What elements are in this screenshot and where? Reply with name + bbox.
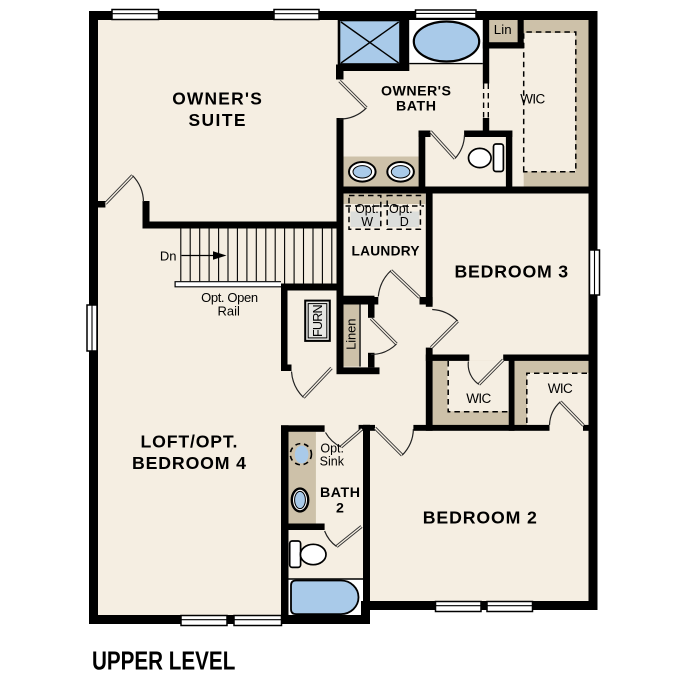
svg-text:W: W: [361, 215, 373, 229]
svg-text:WIC: WIC: [466, 391, 491, 406]
svg-text:Lin: Lin: [494, 22, 512, 37]
svg-text:WIC: WIC: [548, 381, 573, 396]
svg-text:WIC: WIC: [520, 91, 545, 106]
svg-text:BEDROOM 3: BEDROOM 3: [454, 262, 568, 282]
svg-text:UPPER LEVEL: UPPER LEVEL: [92, 645, 235, 675]
svg-text:BEDROOM 4: BEDROOM 4: [132, 453, 246, 473]
svg-text:Opt.: Opt.: [320, 441, 344, 455]
svg-text:LOFT/OPT.: LOFT/OPT.: [141, 432, 238, 452]
svg-text:Linen: Linen: [344, 319, 359, 350]
svg-text:D: D: [400, 215, 409, 229]
svg-text:Dn: Dn: [160, 248, 177, 263]
svg-text:OWNER'S: OWNER'S: [172, 89, 262, 109]
svg-text:BATH: BATH: [396, 99, 436, 115]
svg-text:FURN: FURN: [311, 304, 325, 337]
svg-text:LAUNDRY: LAUNDRY: [351, 243, 419, 258]
svg-text:2: 2: [336, 500, 344, 516]
svg-text:BATH: BATH: [320, 485, 360, 501]
svg-text:Sink: Sink: [320, 454, 345, 468]
svg-text:BEDROOM 2: BEDROOM 2: [423, 508, 537, 528]
svg-text:SUITE: SUITE: [189, 110, 246, 130]
svg-text:OWNER'S: OWNER'S: [381, 83, 451, 99]
svg-text:Rail: Rail: [217, 304, 240, 319]
